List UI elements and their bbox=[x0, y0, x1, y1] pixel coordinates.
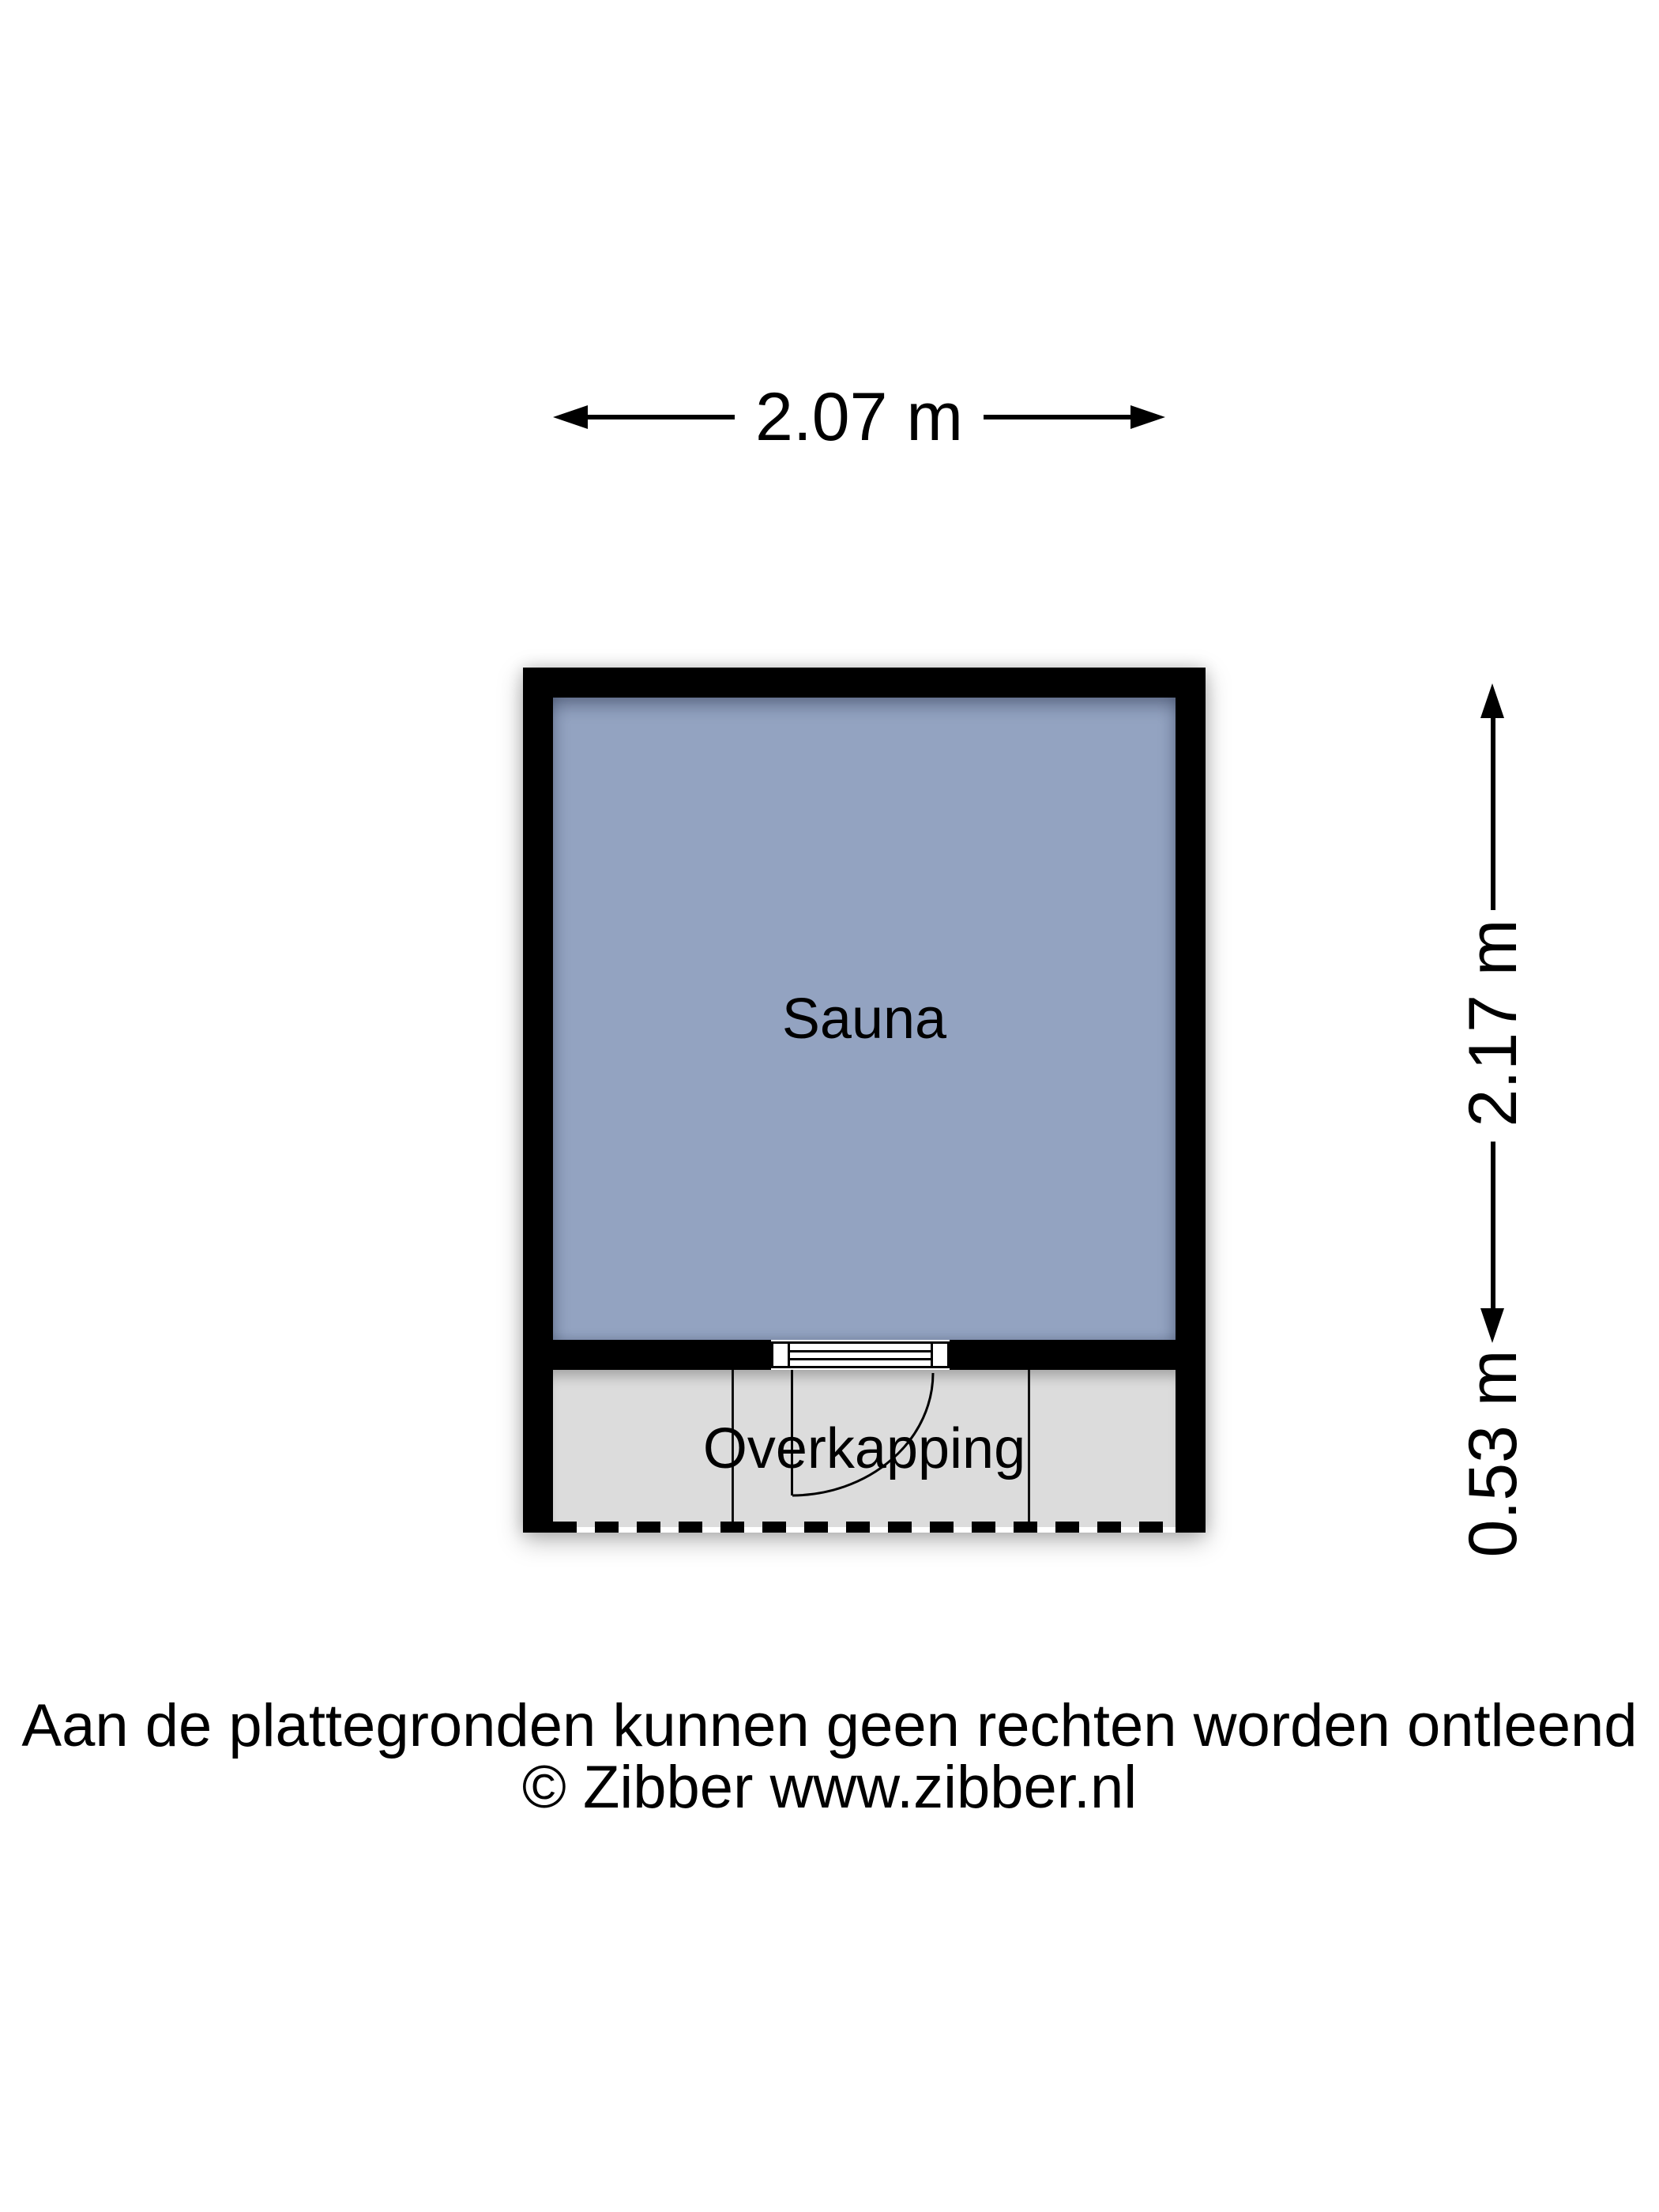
door-panel-line bbox=[790, 1350, 931, 1352]
dimension-overkapping-label: 0.53 m bbox=[1468, 1335, 1518, 1572]
dimension-width-label: 2.07 m bbox=[735, 399, 984, 435]
room-sauna: Sauna bbox=[553, 698, 1176, 1340]
dimension-line bbox=[984, 415, 1130, 419]
dimension-height-label: 2.17 m bbox=[1468, 905, 1518, 1142]
door-jamb-right bbox=[931, 1341, 950, 1368]
copyright-text: © Zibber www.zibber.nl bbox=[0, 1757, 1659, 1819]
room-label-sauna: Sauna bbox=[782, 987, 946, 1051]
dimension-line bbox=[588, 415, 735, 419]
room-overkapping: Overkapping bbox=[553, 1370, 1176, 1527]
door-jamb-left bbox=[771, 1341, 790, 1368]
arrow-up-icon bbox=[1480, 683, 1504, 718]
arrow-right-icon bbox=[1130, 405, 1165, 429]
wall-top bbox=[523, 668, 1206, 698]
disclaimer-text: Aan de plattegronden kunnen geen rechten… bbox=[0, 1695, 1659, 1757]
room-label-overkapping: Overkapping bbox=[703, 1416, 1025, 1481]
door-panel bbox=[790, 1341, 931, 1368]
door-panel-line bbox=[790, 1358, 931, 1360]
wall-right bbox=[1176, 668, 1206, 1533]
dimension-line bbox=[1491, 1142, 1495, 1308]
footer: Aan de plattegronden kunnen geen rechten… bbox=[0, 1695, 1659, 1819]
floor-plan: Sauna Overkapping bbox=[523, 668, 1206, 1533]
overkapping-post-line-right bbox=[1028, 1370, 1030, 1522]
arrow-left-icon bbox=[553, 405, 588, 429]
dimension-line bbox=[1491, 715, 1495, 910]
wall-left bbox=[523, 668, 553, 1533]
open-edge-dashed-line bbox=[553, 1522, 1176, 1533]
dimension-width: 2.07 m bbox=[553, 399, 1165, 435]
